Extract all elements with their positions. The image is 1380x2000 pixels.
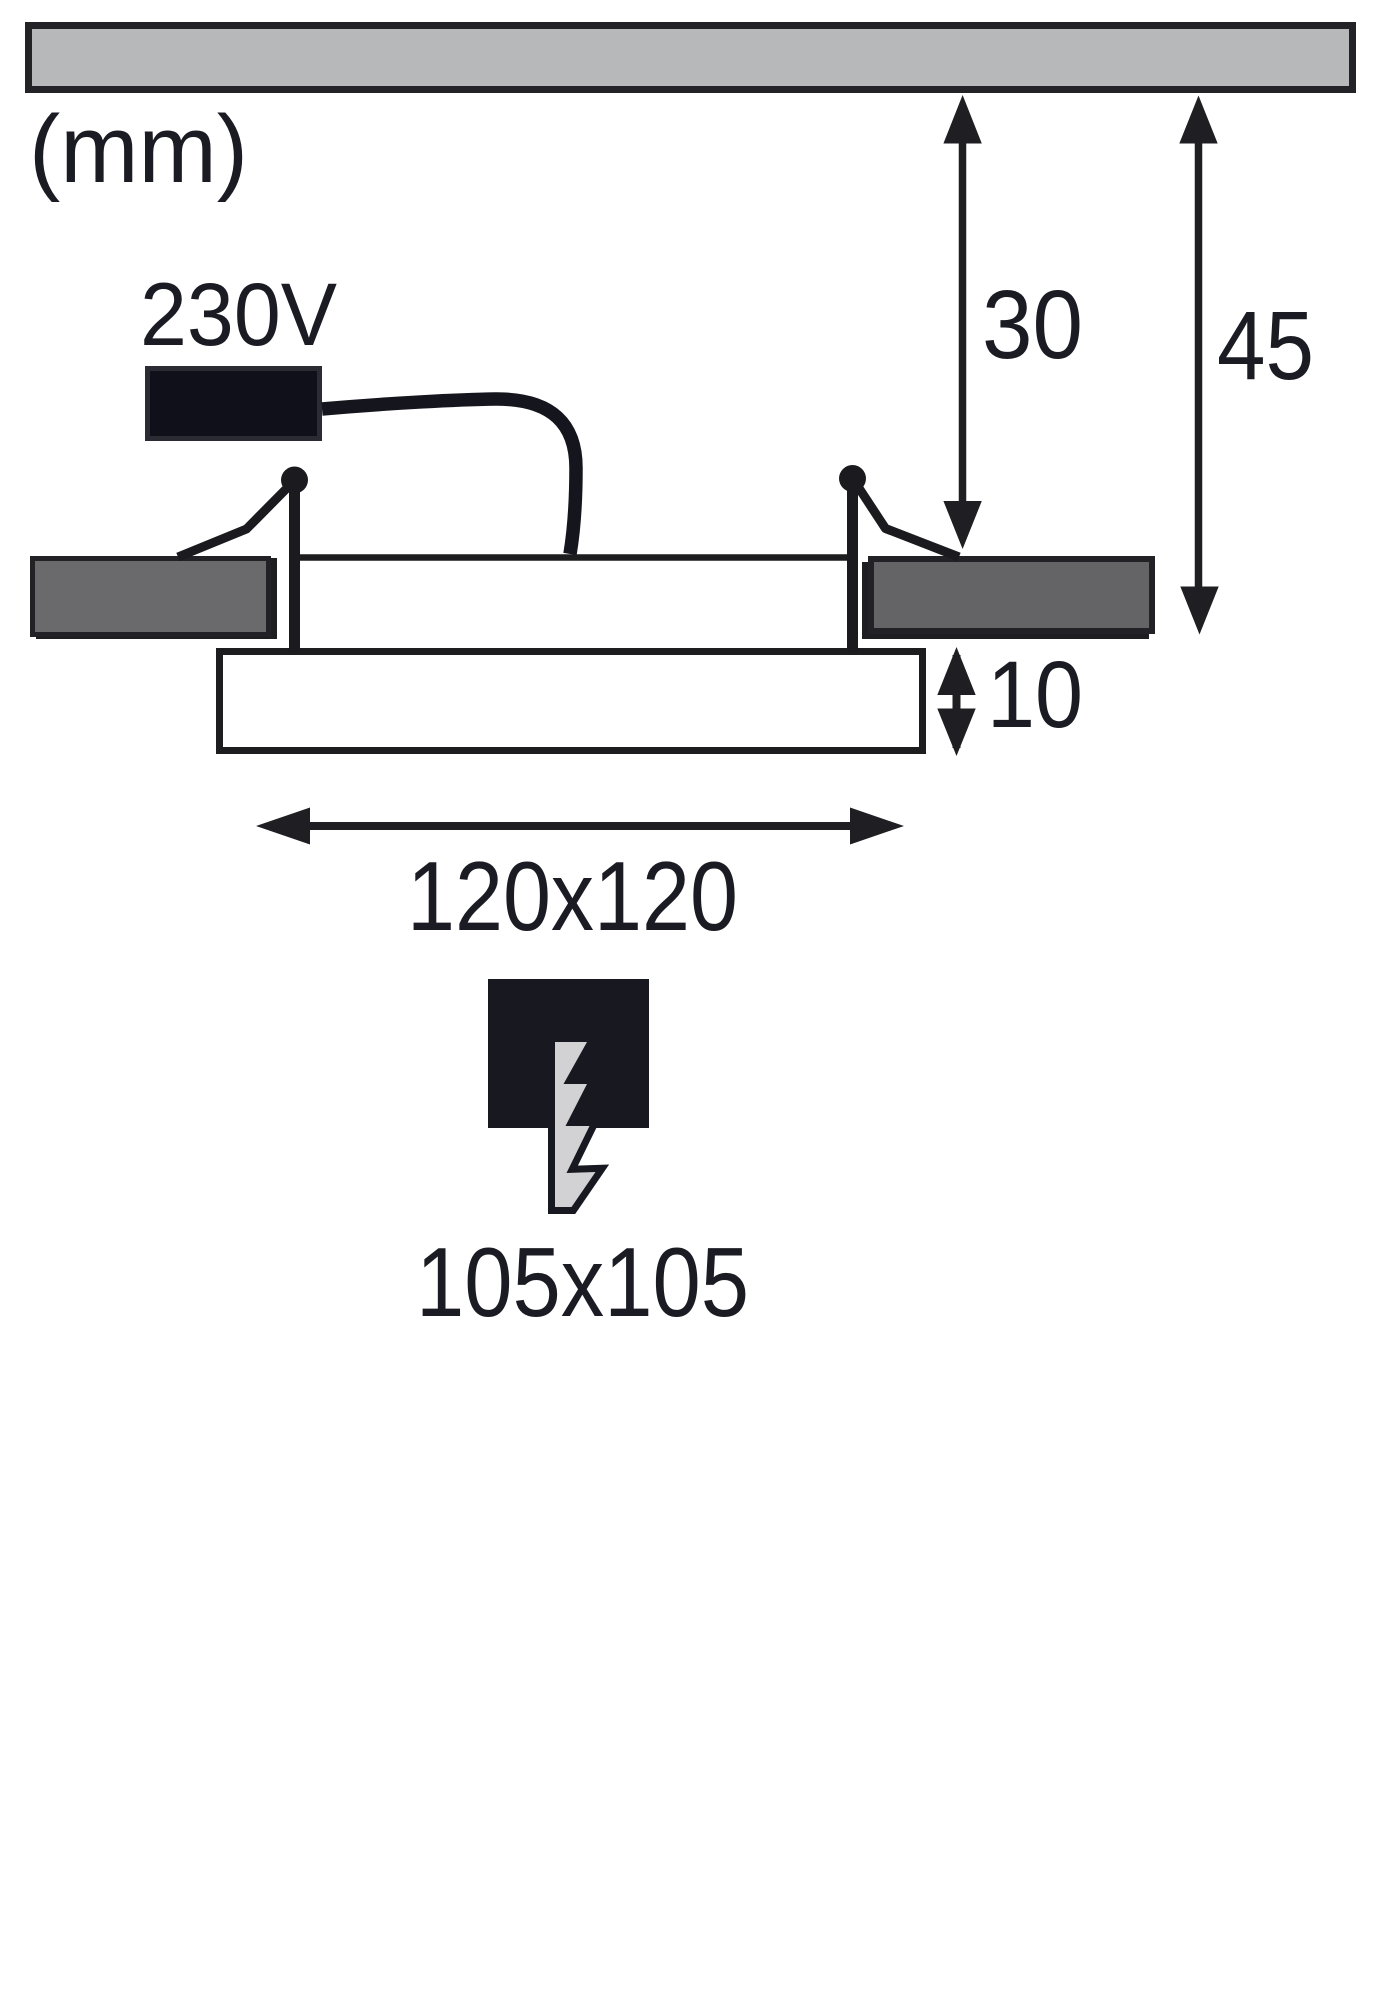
svg-text:(mm): (mm) (29, 96, 248, 203)
svg-text:105x105: 105x105 (416, 1227, 749, 1337)
svg-text:230V: 230V (140, 264, 337, 364)
svg-text:120x120: 120x120 (407, 841, 738, 951)
svg-text:10: 10 (987, 642, 1083, 748)
svg-text:30: 30 (982, 270, 1083, 379)
svg-text:45: 45 (1217, 291, 1314, 400)
